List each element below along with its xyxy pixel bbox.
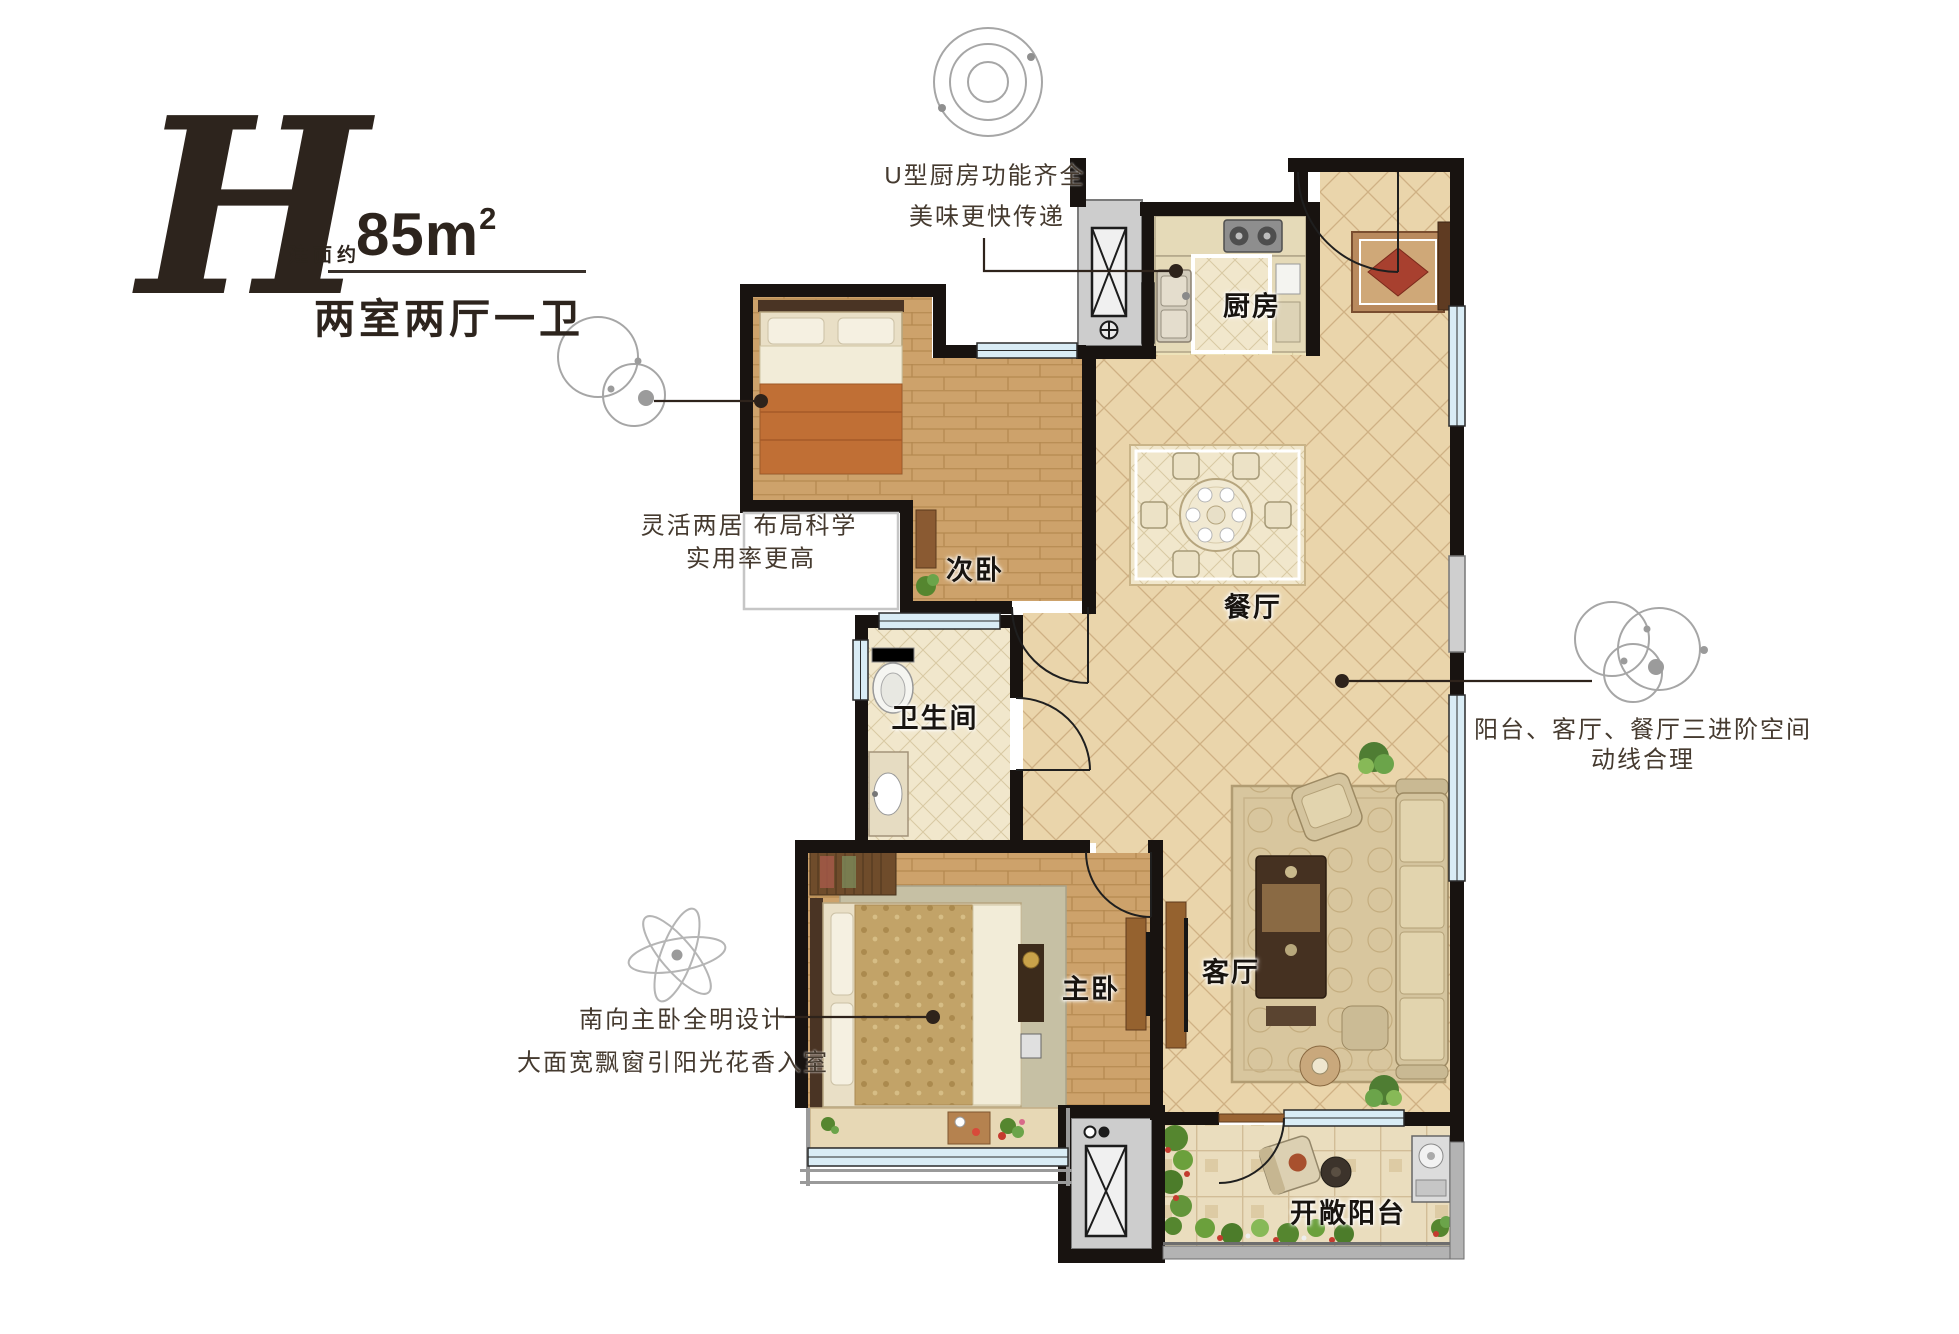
master-headboard bbox=[810, 898, 823, 1112]
bay-tray-table bbox=[948, 1112, 990, 1144]
callout-circulation-line2: 动线合理 bbox=[1591, 740, 1695, 775]
second-bedroom-window bbox=[977, 343, 1077, 358]
header-divider bbox=[328, 270, 586, 273]
callout-kitchen-line1: U型厨房功能齐全 bbox=[884, 156, 1085, 191]
balcony-railing bbox=[1163, 1246, 1464, 1259]
tv-master bbox=[1146, 932, 1150, 1016]
area-label: 建面约 bbox=[289, 240, 361, 267]
area-number: 85m bbox=[356, 201, 479, 268]
room-label-second-bedroom: 次卧 bbox=[946, 549, 1004, 588]
dresser bbox=[916, 510, 936, 568]
tv-stand-master bbox=[1126, 918, 1146, 1030]
bathroom-left-window bbox=[853, 640, 868, 700]
room-label-balcony: 开敞阳台 bbox=[1290, 1192, 1406, 1231]
orbit-icon-kitchen bbox=[934, 28, 1042, 136]
balcony-wall-window bbox=[1284, 1110, 1404, 1126]
callout-flexible-line1: 灵活两居 布局科学 bbox=[641, 506, 858, 541]
bay-window-bench bbox=[810, 1108, 1066, 1148]
right-wall-window-mid bbox=[1449, 695, 1465, 881]
room-label-kitchen: 厨房 bbox=[1223, 285, 1281, 324]
pouf bbox=[1342, 1006, 1388, 1050]
layout-text: 两室两厅一卫 bbox=[314, 285, 584, 345]
dining-furniture bbox=[1130, 445, 1305, 585]
tv-living bbox=[1184, 918, 1188, 1032]
circles-icon-circulation bbox=[1575, 602, 1708, 702]
bed-headboard bbox=[758, 300, 904, 312]
area-superscript: 2 bbox=[479, 201, 497, 236]
room-label-dining: 餐厅 bbox=[1224, 586, 1282, 625]
corridor-floor bbox=[1023, 613, 1098, 843]
callout-kitchen-line2: 美味更快传递 bbox=[909, 197, 1065, 232]
room-label-bathroom: 卫生间 bbox=[892, 697, 979, 736]
callout-master-line2: 大面宽飘窗引阳光花香入室 bbox=[517, 1043, 829, 1078]
right-wall-window-upper bbox=[1449, 306, 1465, 426]
right-wall-panel bbox=[1449, 556, 1465, 652]
callout-master-line1: 南向主卧全明设计 bbox=[579, 1000, 787, 1035]
bathroom-top-window bbox=[879, 613, 1000, 629]
room-label-master-bedroom: 主卧 bbox=[1062, 968, 1120, 1007]
bay-window bbox=[808, 1148, 1068, 1166]
room-label-living: 客厅 bbox=[1202, 951, 1260, 990]
atom-icon-master bbox=[626, 903, 728, 1006]
callout-flexible-line2: 实用率更高 bbox=[686, 539, 816, 574]
floorplan-page: H 建面约 85m2 两室两厅一卫 厨房 次卧 餐厅 卫生间 主卧 客厅 开敞阳… bbox=[0, 0, 1959, 1334]
shoe-cabinet bbox=[1438, 222, 1452, 310]
stairwell bbox=[1071, 1118, 1152, 1249]
tv-stand-living bbox=[1166, 902, 1186, 1048]
area-value: 85m2 bbox=[356, 200, 497, 269]
